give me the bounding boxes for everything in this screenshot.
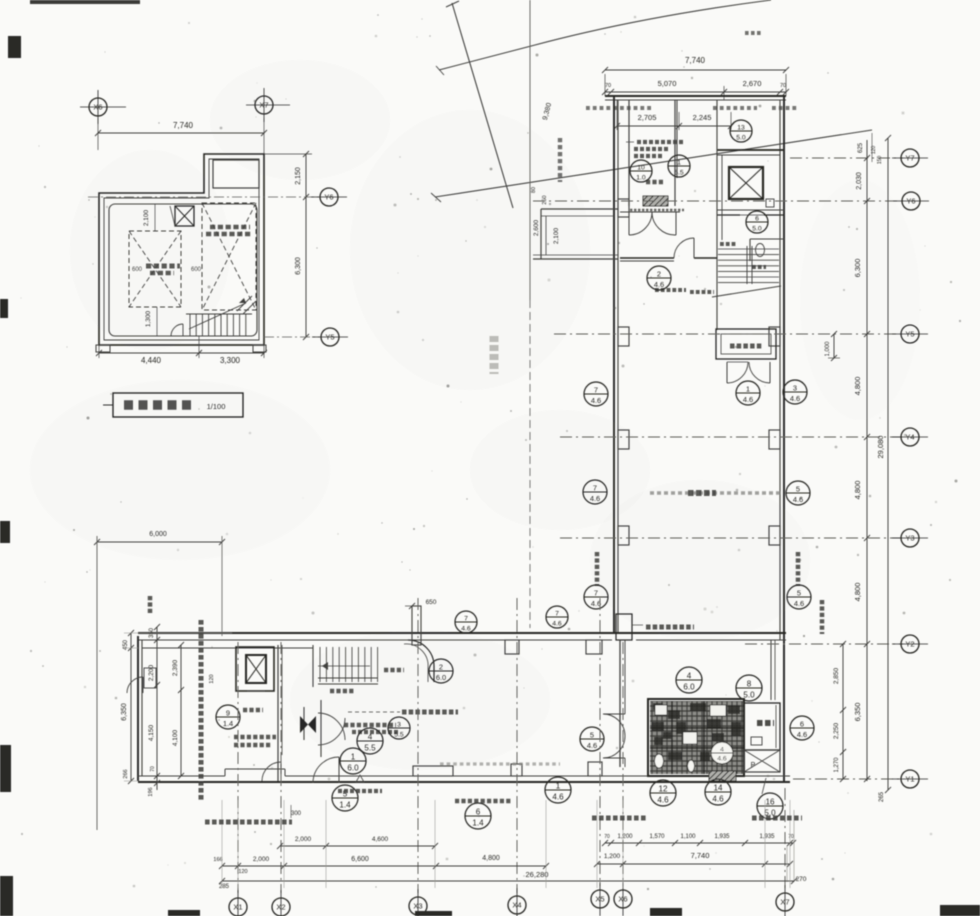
svg-text:270: 270: [796, 876, 807, 883]
svg-text:650: 650: [426, 599, 437, 606]
svg-text:2,245: 2,245: [693, 113, 712, 122]
svg-text:150: 150: [877, 156, 883, 165]
svg-text:12: 12: [659, 785, 668, 794]
svg-text:7: 7: [594, 386, 598, 395]
svg-text:5: 5: [590, 731, 594, 740]
svg-text:265: 265: [879, 791, 885, 802]
svg-text:5.0: 5.0: [736, 134, 746, 141]
svg-text:6: 6: [800, 720, 804, 729]
svg-text:4,150: 4,150: [148, 724, 155, 741]
svg-text:3,300: 3,300: [220, 356, 241, 365]
svg-text:1,200: 1,200: [617, 834, 633, 840]
svg-text:4.6: 4.6: [790, 394, 800, 403]
svg-text:1: 1: [677, 160, 681, 167]
svg-text:6,350: 6,350: [121, 703, 128, 721]
svg-text:4.6: 4.6: [793, 495, 803, 504]
svg-text:196: 196: [148, 787, 154, 796]
svg-text:4.6: 4.6: [587, 741, 597, 750]
svg-text:2: 2: [657, 270, 661, 279]
svg-text:1,270: 1,270: [834, 757, 840, 773]
svg-text:10: 10: [637, 165, 645, 172]
svg-text:285: 285: [219, 884, 230, 890]
svg-text:4.6: 4.6: [657, 796, 669, 805]
svg-text:4.6: 4.6: [461, 625, 471, 632]
svg-text:1,935: 1,935: [714, 834, 730, 840]
svg-text:350: 350: [149, 627, 155, 638]
svg-text:4,800: 4,800: [853, 481, 862, 500]
svg-text:7: 7: [555, 611, 559, 618]
svg-text:4.6: 4.6: [654, 280, 664, 289]
svg-text:166: 166: [213, 857, 222, 863]
svg-text:5.0: 5.0: [752, 225, 762, 232]
svg-text:1: 1: [746, 385, 750, 394]
svg-text:7: 7: [594, 589, 598, 598]
svg-text:120: 120: [209, 674, 215, 683]
svg-text:13: 13: [737, 125, 745, 132]
svg-text:1.4: 1.4: [339, 801, 351, 810]
svg-text:2,390: 2,390: [172, 659, 179, 676]
svg-text:6: 6: [755, 216, 759, 223]
svg-text:7: 7: [464, 616, 468, 623]
svg-text:4,800: 4,800: [482, 855, 500, 862]
svg-text:29,080: 29,080: [876, 436, 885, 459]
svg-text:120: 120: [238, 869, 247, 875]
svg-text:1.4: 1.4: [223, 719, 233, 728]
svg-text:7,740: 7,740: [691, 851, 710, 860]
svg-text:70: 70: [605, 83, 611, 89]
svg-text:1.4: 1.4: [472, 819, 484, 828]
svg-text:625: 625: [858, 142, 864, 153]
svg-text:4.6: 4.6: [717, 756, 727, 763]
svg-text:5,070: 5,070: [658, 79, 677, 88]
svg-text:1,100: 1,100: [680, 834, 696, 840]
svg-text:6.0: 6.0: [347, 764, 359, 773]
svg-text:4,800: 4,800: [853, 583, 862, 602]
svg-text:70: 70: [788, 834, 794, 840]
svg-text:4: 4: [720, 747, 724, 754]
svg-text:8: 8: [747, 680, 752, 689]
svg-text:1,570: 1,570: [649, 834, 665, 840]
svg-text:9: 9: [226, 709, 230, 718]
svg-text:2,670: 2,670: [743, 79, 762, 88]
svg-text:6,600: 6,600: [351, 856, 369, 863]
svg-text:4,440: 4,440: [141, 356, 162, 365]
svg-text:4.6: 4.6: [552, 620, 562, 627]
svg-text:5: 5: [796, 485, 800, 494]
svg-text:26,280: 26,280: [526, 870, 549, 879]
svg-text:4,100: 4,100: [172, 729, 179, 746]
svg-text:6.0: 6.0: [683, 683, 695, 692]
svg-text:4.6: 4.6: [712, 795, 724, 804]
svg-text:2,705: 2,705: [638, 113, 657, 122]
svg-text:4.6: 4.6: [552, 793, 564, 802]
svg-text:5.5: 5.5: [674, 169, 684, 176]
svg-text:4.6: 4.6: [797, 730, 807, 739]
svg-text:1.0: 1.0: [636, 174, 646, 181]
svg-text:266: 266: [123, 769, 129, 778]
svg-text:70: 70: [780, 83, 786, 89]
svg-text:6,300: 6,300: [295, 257, 302, 275]
svg-text:2,850: 2,850: [833, 667, 840, 684]
svg-text:4.6: 4.6: [743, 395, 753, 404]
svg-text:14: 14: [714, 784, 723, 793]
svg-text:2,000: 2,000: [253, 856, 270, 863]
svg-text:2,000: 2,000: [295, 836, 312, 843]
svg-text:4: 4: [687, 672, 692, 681]
svg-text:6,350: 6,350: [853, 703, 862, 722]
svg-text:1,200: 1,200: [604, 853, 621, 860]
svg-text:3: 3: [793, 384, 797, 393]
svg-text:P: P: [751, 762, 756, 769]
svg-text:1,935: 1,935: [759, 834, 775, 840]
svg-text:70: 70: [604, 834, 610, 840]
svg-text:7,740: 7,740: [685, 56, 706, 65]
svg-text:450: 450: [123, 639, 129, 650]
svg-text:16: 16: [766, 798, 775, 807]
svg-text:2,250: 2,250: [833, 722, 840, 739]
svg-text:2,200: 2,200: [148, 664, 155, 681]
svg-text:300: 300: [291, 811, 302, 817]
svg-text:1: 1: [556, 782, 561, 791]
svg-text:4,600: 4,600: [372, 836, 389, 843]
svg-text:4.6: 4.6: [794, 599, 804, 608]
svg-text:5.0: 5.0: [743, 691, 755, 700]
svg-text:4.6: 4.6: [591, 396, 601, 405]
svg-text:70: 70: [150, 766, 156, 772]
svg-text:7,740: 7,740: [173, 121, 194, 130]
